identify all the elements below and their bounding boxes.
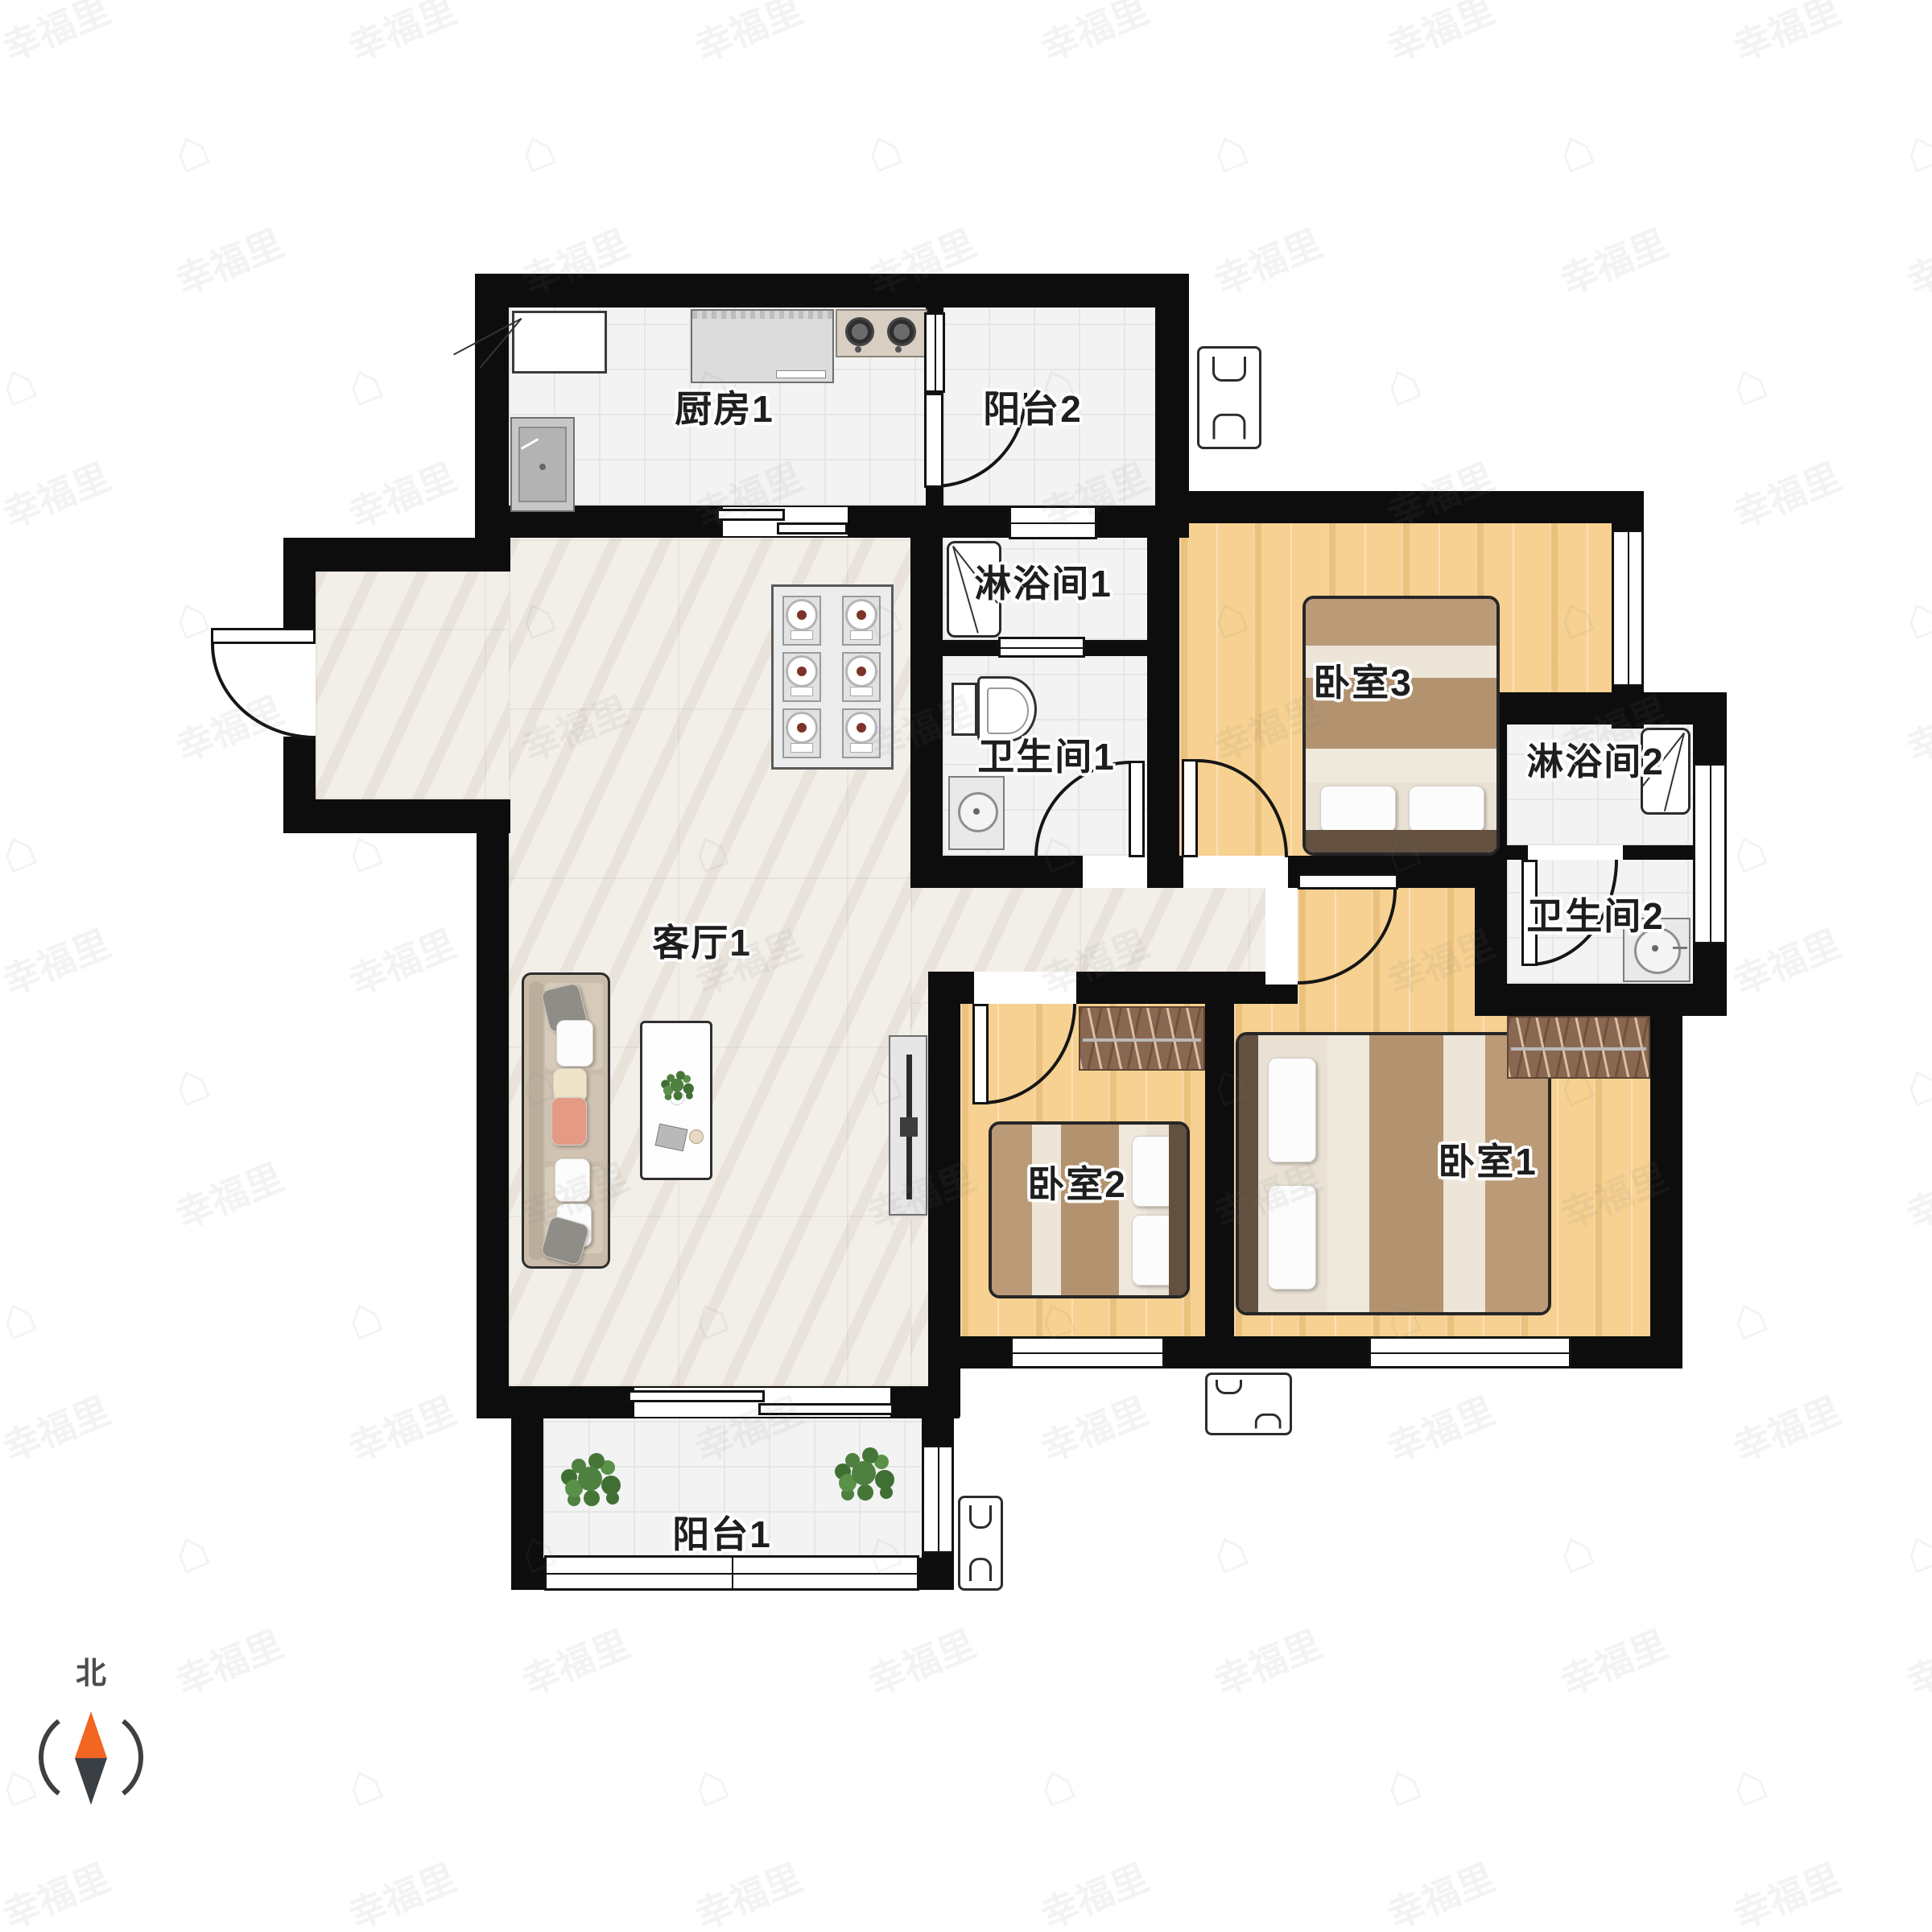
door-opening [1528, 845, 1623, 860]
door-opening [974, 972, 1076, 1004]
wall [1475, 984, 1727, 1016]
house-icon: ⌂ [681, 1747, 738, 1821]
house-icon: ⌂ [1373, 346, 1430, 420]
window [998, 637, 1085, 658]
watermark-text: 幸福里 [1725, 1849, 1848, 1932]
watermark-text: 幸福里 [1552, 215, 1675, 306]
watermark-text: 幸福里 [341, 915, 464, 1006]
cooktop-icon [836, 309, 927, 357]
house-icon: ⌂ [335, 346, 392, 420]
wall [1155, 274, 1189, 523]
place-setting-icon [842, 652, 881, 702]
watermark-text: 幸福里 [1898, 1149, 1932, 1240]
wall [1475, 692, 1727, 724]
house-icon: ⌂ [0, 1280, 46, 1354]
watermark-text: 幸福里 [0, 448, 117, 539]
compass-north-label: 北 [76, 1649, 106, 1693]
watermark-text: 幸福里 [341, 0, 464, 72]
house-icon: ⌂ [0, 346, 46, 420]
house-icon: ⌂ [0, 813, 46, 887]
house-icon: ⌂ [1893, 1513, 1932, 1587]
room-label-balcony2: 阳台2 [983, 380, 1083, 433]
watermark-text: 幸福里 [1725, 448, 1848, 539]
ac-unit-icon [1197, 346, 1261, 449]
watermark-text: 幸福里 [687, 0, 810, 72]
entry-floor [316, 572, 509, 799]
place-setting-icon [782, 708, 821, 758]
balcony-window [544, 1555, 919, 1591]
ac-unit-icon [958, 1496, 1003, 1591]
room-label-bedroom1: 卧室1 [1438, 1133, 1538, 1186]
watermark-text: 幸福里 [1379, 1382, 1502, 1473]
compass-icon [39, 1705, 143, 1810]
house-icon: ⌂ [854, 113, 911, 187]
sliding-door-panel [628, 1390, 765, 1402]
room-label-bedroom3: 卧室3 [1313, 654, 1413, 707]
place-setting-icon [782, 652, 821, 702]
corner-cabinet-icon [512, 311, 607, 374]
house-icon: ⌂ [1719, 346, 1777, 420]
watermark-text: 幸福里 [341, 448, 464, 539]
room-label-living: 客厅1 [652, 914, 752, 967]
sliding-door-panel [758, 1403, 894, 1415]
place-setting-icon [782, 596, 821, 646]
kitchen-counter-icon [691, 309, 834, 383]
house-icon: ⌂ [1893, 580, 1932, 654]
watermark-text: 幸福里 [860, 1616, 983, 1707]
house-icon: ⌂ [1200, 1513, 1257, 1587]
bath1-door-leaf [1129, 761, 1145, 857]
house-icon: ⌂ [335, 1747, 392, 1821]
watermark-text: 幸福里 [1725, 0, 1848, 72]
watermark-text: 幸福里 [341, 1382, 464, 1473]
house-icon: ⌂ [1893, 113, 1932, 187]
coffee-table-icon [640, 1021, 712, 1180]
balcony2-door-leaf [924, 393, 943, 488]
door-opening [1265, 888, 1298, 985]
watermark-text: 幸福里 [167, 1149, 291, 1240]
house-icon: ⌂ [1546, 113, 1604, 187]
room-label-shower1: 淋浴间1 [974, 555, 1113, 608]
wall [1147, 523, 1179, 888]
watermark-text: 幸福里 [1379, 1849, 1502, 1932]
wall [477, 799, 509, 1397]
wall [1155, 491, 1644, 523]
house-icon: ⌂ [1893, 1046, 1932, 1121]
window [922, 1445, 954, 1554]
watermark-text: 幸福里 [341, 1849, 464, 1932]
bed-icon [1302, 596, 1500, 856]
kitchen-sink-icon [510, 417, 575, 512]
wall [1205, 1004, 1234, 1336]
door-opening [1083, 856, 1147, 888]
bed-icon [989, 1121, 1190, 1298]
watermark-text: 幸福里 [1898, 682, 1932, 773]
ac-unit-icon [1205, 1373, 1292, 1435]
house-icon: ⌂ [162, 1046, 219, 1121]
watermark-text: 幸福里 [1206, 215, 1329, 306]
room-label-kitchen: 厨房1 [675, 380, 774, 433]
house-icon: ⌂ [1719, 813, 1777, 887]
bedroom1-door-leaf [1298, 873, 1398, 890]
window [1368, 1336, 1571, 1368]
watermark-text: 幸福里 [1725, 1382, 1848, 1473]
house-icon: ⌂ [1027, 1747, 1084, 1821]
window [1693, 763, 1727, 944]
house-icon: ⌂ [1373, 1747, 1430, 1821]
house-icon: ⌂ [1200, 113, 1257, 187]
bedroom3-door-leaf [1182, 759, 1198, 857]
watermark-text: 幸福里 [514, 1616, 637, 1707]
wall [283, 538, 510, 572]
watermark-text: 幸福里 [0, 915, 117, 1006]
watermark-text: 幸福里 [1033, 1849, 1156, 1932]
wall [283, 538, 316, 636]
room-label-bath1: 卫生间1 [977, 728, 1116, 781]
watermark-text: 幸福里 [0, 1382, 117, 1473]
sliding-door-panel [777, 522, 848, 535]
watermark-text: 幸福里 [687, 1849, 810, 1932]
watermark-text: 幸福里 [1206, 1616, 1329, 1707]
house-icon: ⌂ [162, 1513, 219, 1587]
wardrobe-icon [1079, 1006, 1205, 1071]
wall [475, 274, 509, 539]
window [1612, 530, 1644, 687]
wall [475, 274, 1189, 308]
plant-icon [578, 1467, 602, 1491]
watermark-text: 幸福里 [167, 1616, 291, 1707]
entry-door-leaf [211, 628, 316, 644]
house-icon: ⌂ [1719, 1280, 1777, 1354]
watermark-text: 幸福里 [1725, 915, 1848, 1006]
floor-plan: 厨房1 阳台2 淋浴间1 卫生间1 卧室3 淋浴间2 卫生间2 客厅1 卧室2 … [0, 0, 1932, 1932]
watermark-text: 幸福里 [1898, 215, 1932, 306]
room-label-bedroom2: 卧室2 [1027, 1155, 1127, 1208]
watermark-text: 幸福里 [1552, 1616, 1675, 1707]
door-opening [1183, 856, 1288, 888]
house-icon: ⌂ [1546, 1513, 1604, 1587]
place-setting-icon [842, 596, 881, 646]
watermark-text: 幸福里 [1379, 0, 1502, 72]
watermark-text: 幸福里 [1898, 1616, 1932, 1707]
place-setting-icon [842, 708, 881, 758]
bath1-sink-icon [948, 776, 1005, 850]
room-label-balcony1: 阳台1 [672, 1505, 772, 1558]
watermark-text: 幸福里 [1033, 0, 1156, 72]
wall [1650, 1013, 1682, 1368]
watermark-text: 幸福里 [0, 0, 117, 72]
window [1010, 1336, 1165, 1368]
house-icon: ⌂ [508, 113, 565, 187]
plant-icon [852, 1461, 876, 1485]
tv-stand-icon [889, 1035, 927, 1216]
window [924, 312, 945, 393]
bedroom2-door-leaf [972, 1004, 989, 1104]
sofa-icon [522, 972, 610, 1269]
wardrobe-icon [1507, 1016, 1650, 1079]
entry-door-arc [211, 644, 316, 739]
sliding-door-panel [716, 509, 785, 521]
room-label-bath2: 卫生间2 [1526, 887, 1665, 940]
watermark-text: 幸福里 [0, 1849, 117, 1932]
window [1009, 506, 1097, 539]
room-label-shower2: 淋浴间2 [1526, 733, 1665, 786]
watermark-text: 幸福里 [167, 215, 291, 306]
watermark-text: 幸福里 [1033, 1382, 1156, 1473]
house-icon: ⌂ [1719, 1747, 1777, 1821]
wall [910, 506, 943, 888]
house-icon: ⌂ [335, 1280, 392, 1354]
house-icon: ⌂ [162, 113, 219, 187]
